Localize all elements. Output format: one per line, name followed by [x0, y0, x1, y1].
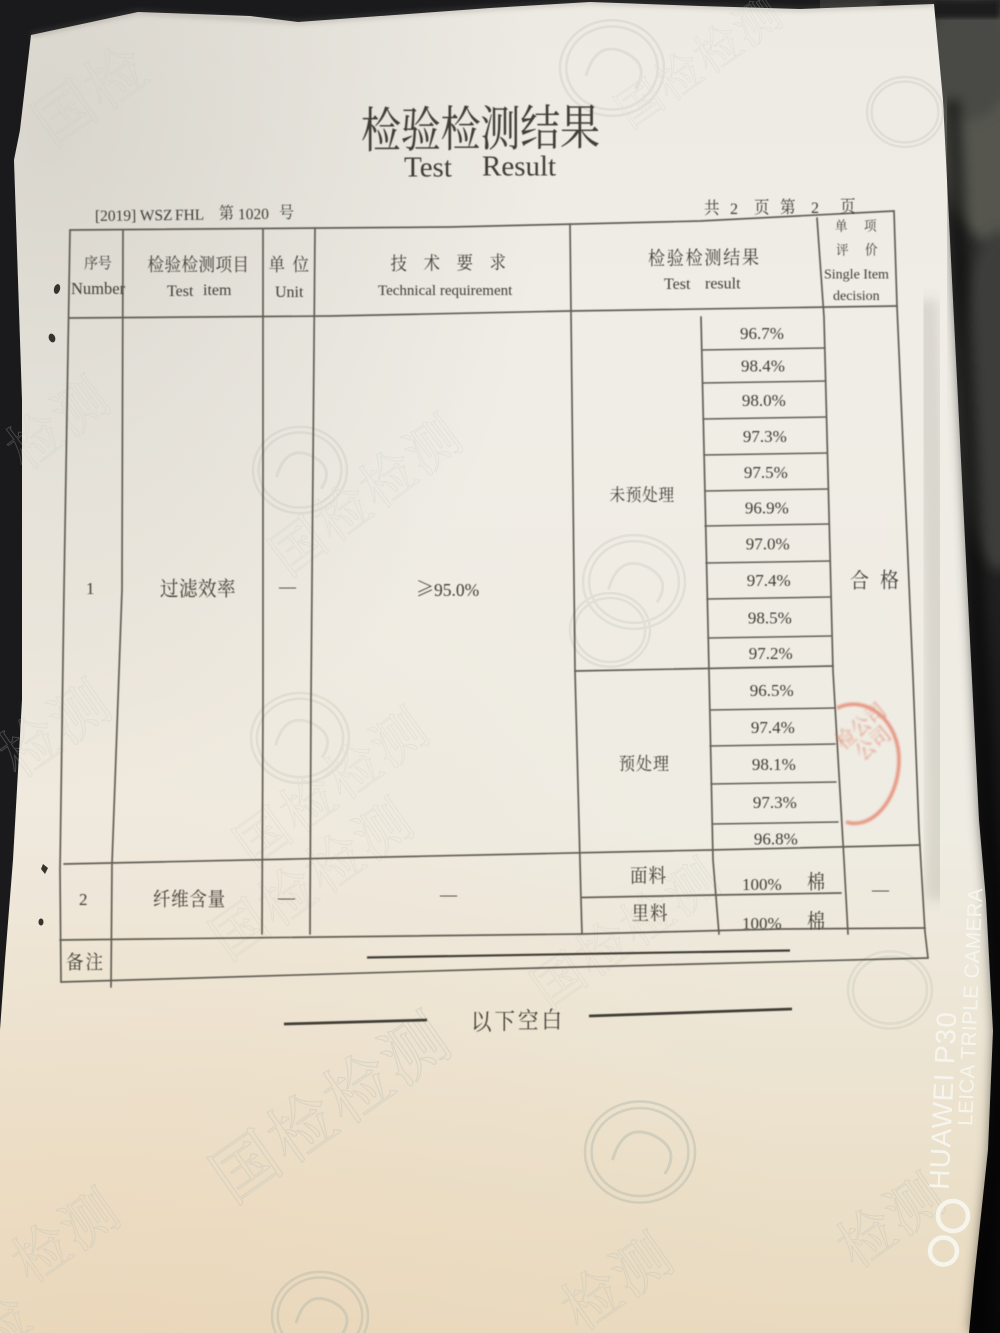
svg-text:Single Item: Single Item	[824, 268, 889, 283]
svg-text:95.0%: 95.0%	[434, 580, 479, 600]
svg-text:97.4%: 97.4%	[751, 718, 795, 737]
svg-text:96.9%: 96.9%	[745, 499, 789, 518]
svg-text:96.8%: 96.8%	[754, 830, 798, 849]
svg-text:FHL: FHL	[175, 207, 205, 224]
svg-text:97.0%: 97.0%	[746, 535, 790, 554]
svg-text:98.0%: 98.0%	[742, 391, 786, 410]
svg-text:Technical requirement: Technical requirement	[378, 283, 513, 299]
svg-text:decision: decision	[833, 289, 880, 304]
svg-text:Unit: Unit	[275, 284, 304, 301]
svg-text:—: —	[871, 880, 890, 899]
svg-text:96.7%: 96.7%	[740, 324, 784, 343]
svg-text:98.1%: 98.1%	[752, 755, 796, 774]
svg-text:97.3%: 97.3%	[743, 427, 787, 446]
svg-text:[2019] WSZ: [2019] WSZ	[95, 207, 173, 225]
svg-text:—: —	[277, 888, 296, 907]
svg-text:Test: Test	[664, 276, 691, 293]
svg-text:97.3%: 97.3%	[753, 793, 797, 812]
svg-text:2: 2	[811, 200, 819, 217]
svg-text:Test: Test	[167, 283, 194, 300]
svg-text:—: —	[439, 885, 458, 904]
svg-text:97.2%: 97.2%	[749, 644, 793, 663]
svg-text:98.4%: 98.4%	[741, 357, 785, 376]
svg-text:96.5%: 96.5%	[750, 681, 794, 700]
svg-text:97.5%: 97.5%	[744, 463, 788, 482]
svg-text:1020: 1020	[238, 206, 269, 223]
svg-text:2: 2	[79, 890, 88, 909]
svg-text:100%: 100%	[742, 914, 782, 933]
svg-text:item: item	[203, 282, 232, 299]
svg-text:98.5%: 98.5%	[748, 609, 792, 628]
svg-text:Number: Number	[71, 279, 126, 298]
svg-text:97.4%: 97.4%	[747, 571, 791, 590]
svg-text:Result: Result	[482, 151, 556, 183]
svg-text:result: result	[705, 276, 741, 293]
svg-text:1: 1	[86, 579, 95, 598]
svg-text:Test: Test	[404, 152, 452, 184]
svg-text:—: —	[278, 577, 297, 596]
svg-text:2: 2	[730, 201, 738, 218]
svg-text:100%: 100%	[742, 875, 782, 894]
